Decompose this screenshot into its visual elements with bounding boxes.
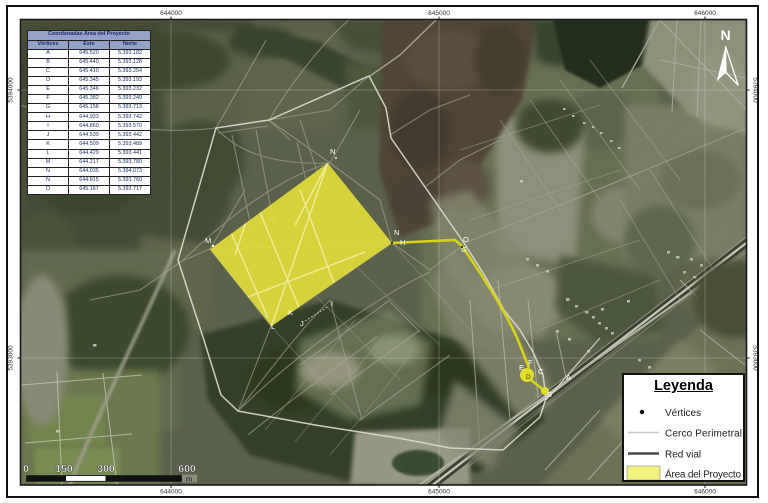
svg-text:5394000: 5394000: [8, 77, 15, 103]
svg-text:N: N: [394, 228, 399, 237]
svg-text:646000: 646000: [694, 10, 716, 17]
svg-text:K: K: [288, 308, 293, 317]
svg-text:644000: 644000: [160, 10, 182, 17]
svg-text:300: 300: [97, 463, 115, 475]
svg-text:Cerco Perimetral: Cerco Perimetral: [665, 429, 742, 440]
svg-text:Área del Proyecto: Área del Proyecto: [665, 468, 741, 481]
svg-text:L: L: [271, 322, 275, 331]
svg-text:M: M: [205, 236, 211, 245]
svg-text:m: m: [186, 475, 192, 484]
svg-text:F: F: [528, 358, 533, 367]
svg-text:C: C: [538, 367, 544, 376]
svg-text:5394000: 5394000: [752, 77, 759, 103]
svg-text:Vértices: Vértices: [665, 408, 701, 419]
svg-text:600: 600: [178, 463, 196, 475]
svg-text:646000: 646000: [694, 489, 716, 496]
svg-text:5393000: 5393000: [8, 345, 15, 371]
svg-text:N: N: [720, 27, 730, 43]
svg-text:O: O: [463, 235, 469, 244]
svg-text:A: A: [566, 373, 571, 382]
svg-text:D: D: [526, 374, 531, 381]
svg-text:645000: 645000: [428, 489, 450, 496]
svg-text:644000: 644000: [160, 489, 182, 496]
svg-text:E: E: [519, 363, 524, 372]
svg-text:5393000: 5393000: [752, 345, 759, 371]
svg-text:H: H: [400, 238, 405, 247]
svg-text:J: J: [300, 319, 304, 328]
svg-text:645000: 645000: [428, 10, 450, 17]
svg-text:N: N: [330, 147, 335, 156]
svg-text:B: B: [547, 390, 552, 399]
svg-text:I: I: [331, 299, 333, 308]
svg-text:150: 150: [55, 463, 73, 475]
svg-text:0: 0: [23, 463, 29, 475]
svg-text:Red vial: Red vial: [665, 450, 701, 461]
